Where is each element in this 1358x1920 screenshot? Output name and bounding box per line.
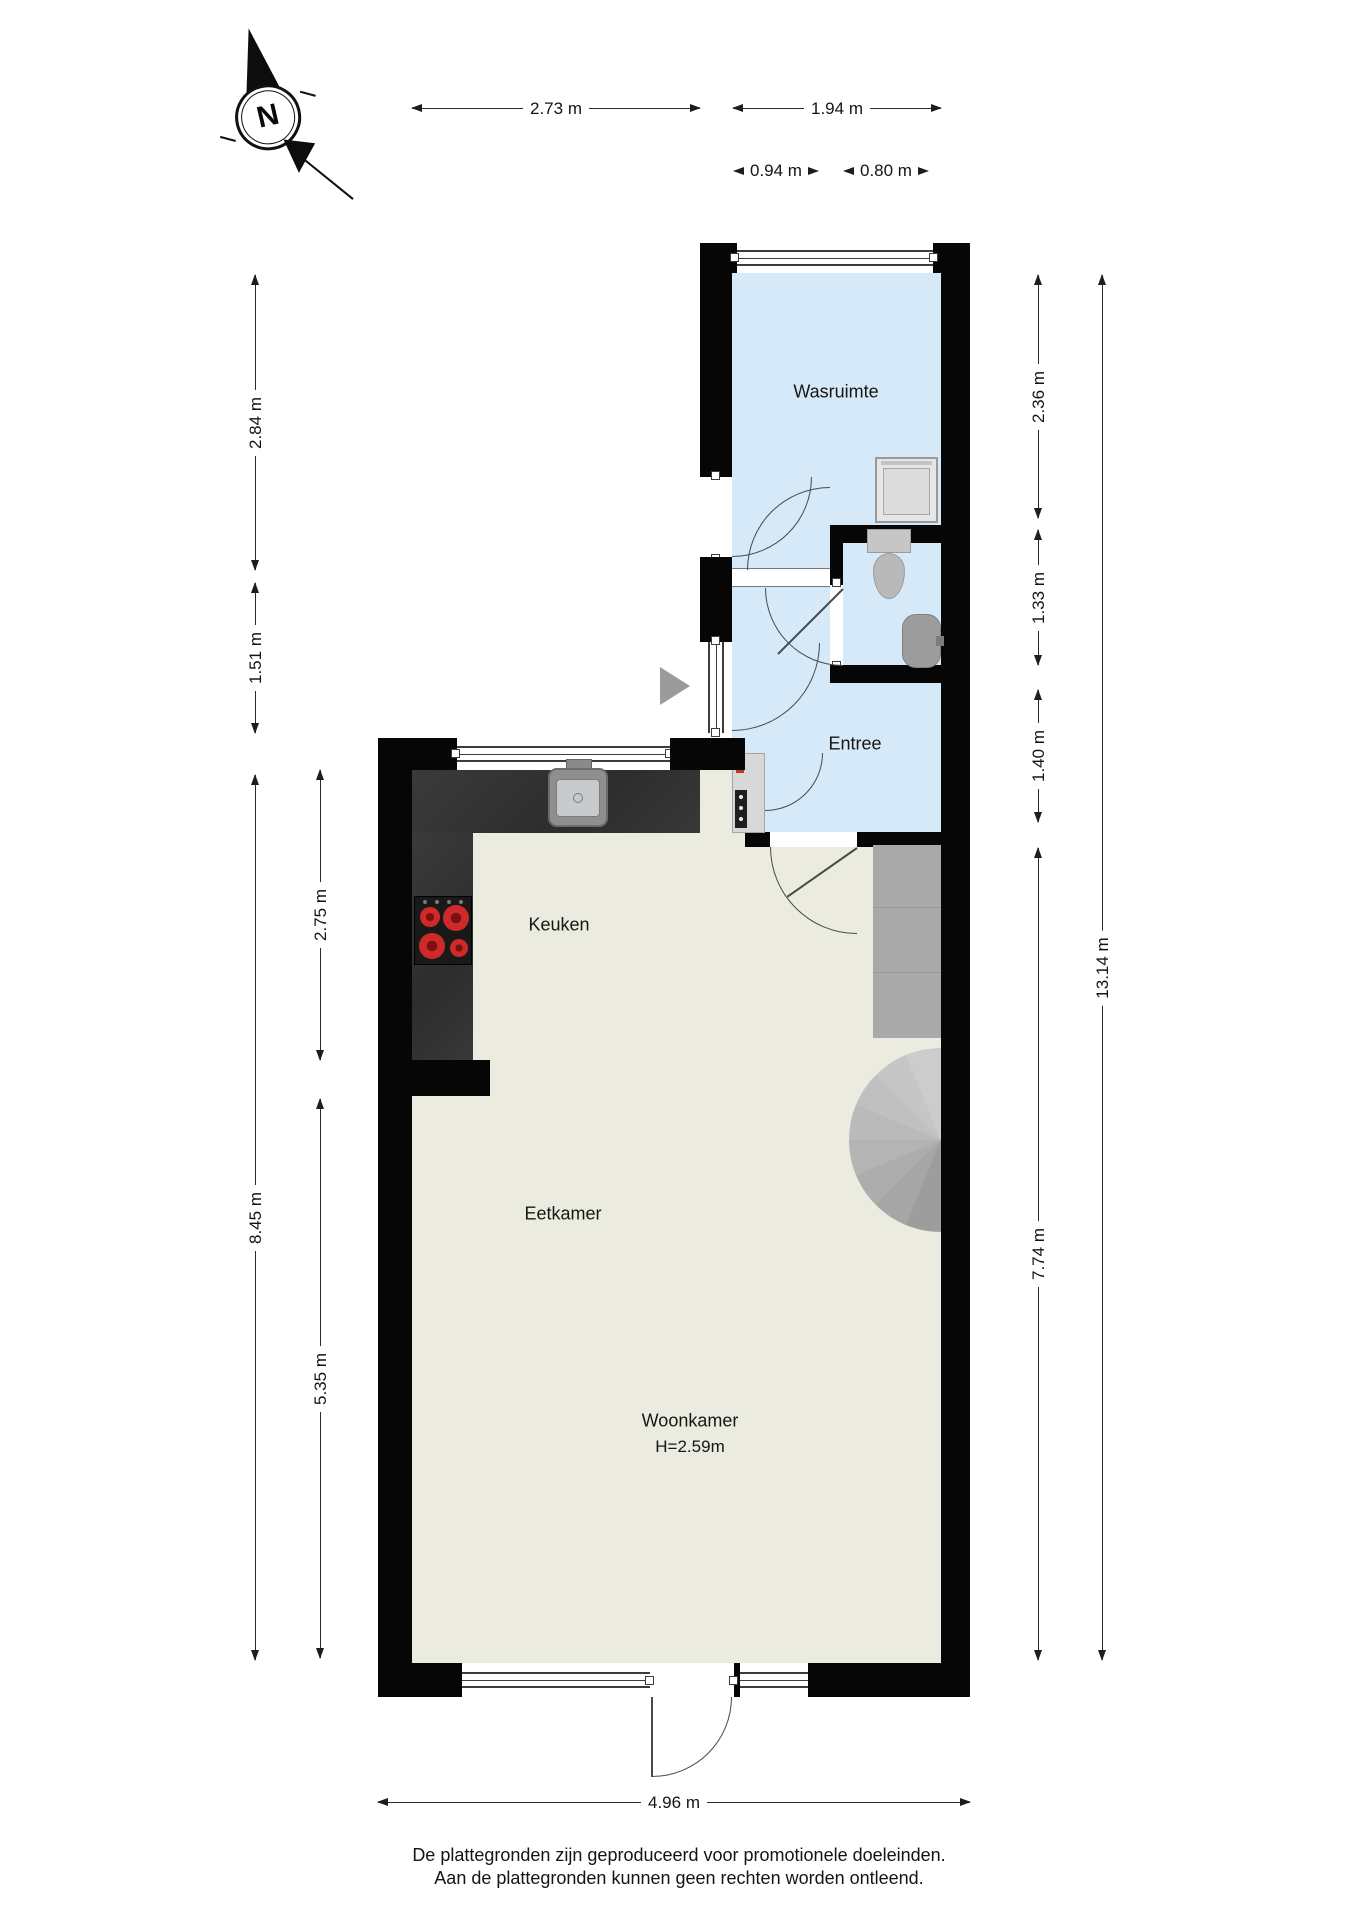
living-floor [412,832,941,1663]
arrow-down-icon [1034,812,1042,823]
disclaimer: De plattegronden zijn geproduceerd voor … [0,1844,1358,1890]
arrow-left-icon [733,167,744,175]
wc-sink [902,614,941,668]
arrow-up-icon [1034,689,1042,700]
arrow-right-icon [918,167,929,175]
stove-burner [419,933,445,959]
stove [414,896,472,965]
door-wasruimte-entree [732,568,830,587]
wall-bottom-left [378,1663,462,1697]
floorplan-canvas: N [0,0,1358,1920]
dimension-left-2-84: 2.84 m [255,275,256,570]
toilet-tank [867,529,911,553]
dimension-right-7-74: 7.74 m [1038,848,1039,1660]
stove-knob [447,900,451,904]
kitchen-sink-basin [556,779,600,817]
stair-cupboard [873,845,941,1038]
stove-knob [423,900,427,904]
arrow-right-icon [690,104,701,112]
room-label-entree: Entree [828,734,881,755]
arrow-down-icon [1034,655,1042,666]
arrow-down-icon [1034,508,1042,519]
arrow-down-icon [251,560,259,571]
door-jamb [711,471,720,480]
dimension-top-2-73: 2.73 m [412,108,700,109]
arrow-up-icon [1034,274,1042,285]
arrow-up-icon [316,769,324,780]
dimension-right-13-14: 13.14 m [1102,275,1103,1660]
window-jamb [451,749,460,758]
window-woonkamer-left [462,1672,650,1688]
arrow-left-icon [843,167,854,175]
arrow-up-icon [1098,274,1106,285]
door-jamb [711,728,720,737]
arrow-up-icon [1034,847,1042,858]
washing-machine-door [883,468,930,515]
wall-left-upper-a [700,273,732,477]
arrow-down-icon [1034,1650,1042,1661]
stove-burner [450,939,468,957]
window-jamb [730,253,739,262]
arrow-up-icon [251,274,259,285]
arrow-up-icon [251,774,259,785]
window-wasruimte-top [737,250,933,266]
wall-counter-stub [412,1060,490,1096]
arrow-down-icon [251,723,259,734]
arrow-down-icon [316,1648,324,1659]
arrow-up-icon [251,582,259,593]
meter-panel [735,790,747,828]
entrance-arrow-icon [660,667,690,705]
washing-machine-controls [881,461,932,465]
washing-machine [875,457,938,523]
front-door-glazing [708,642,724,733]
door-jamb [711,636,720,645]
wall-left-lower [378,738,412,1697]
arrow-left-icon [377,1798,388,1806]
back-door-swing-arc [652,1697,732,1777]
cupboard-seam [873,907,941,908]
wall-bottom-right [808,1663,970,1697]
compass-tick-left [220,136,236,142]
stove-knob [435,900,439,904]
stove-burner [443,905,469,931]
disclaimer-line-1: De plattegronden zijn geproduceerd voor … [0,1844,1358,1867]
window-kitchen [457,746,670,762]
door-jamb [832,578,841,587]
door-wasruimte-left [700,477,732,557]
disclaimer-line-2: Aan de plattegronden kunnen geen rechten… [0,1867,1358,1890]
dimension-left-8-45: 8.45 m [255,775,256,1660]
compass-rose-icon: N [185,14,354,228]
stove-knob [459,900,463,904]
door-jamb [729,1676,738,1685]
dimension-top-1-94: 1.94 m [733,108,941,109]
wall-left-upper-b [700,557,732,642]
dimension-right-2-36: 2.36 m [1038,275,1039,518]
room-label-wasruimte: Wasruimte [793,382,878,403]
compass-tick-right [300,91,316,97]
arrow-left-icon [411,104,422,112]
cupboard-seam [873,972,941,973]
arrow-left-icon [732,104,743,112]
arrow-right-icon [960,1798,971,1806]
stove-burner [420,907,440,927]
dimension-top-0-80: 0.80 m [843,161,929,181]
arrow-right-icon [808,167,819,175]
arrow-down-icon [1098,1650,1106,1661]
dimension-right-1-40: 1.40 m [1038,690,1039,822]
arrow-up-icon [1034,529,1042,540]
window-woonkamer-right [740,1672,808,1688]
dimension-left-1-51: 1.51 m [255,583,256,733]
window-jamb [929,253,938,262]
wall-right [941,243,970,1697]
kitchen-sink-drain [573,793,583,803]
compass-tail-line [296,153,353,200]
door-entree-eetkamer [770,832,857,847]
arrow-down-icon [316,1050,324,1061]
door-jamb [645,1676,654,1685]
kitchen-sink [548,768,608,827]
arrow-down-icon [251,1650,259,1661]
dimension-bottom-4-96: 4.96 m [378,1802,970,1803]
room-label-woonkamer-height: H=2.59m [655,1437,724,1457]
dimension-left-5-35: 5.35 m [320,1099,321,1658]
room-label-woonkamer: Woonkamer [642,1411,739,1432]
wall-kitchen-top-right [670,738,745,770]
room-label-keuken: Keuken [528,915,589,936]
wc-sink-tap [936,636,944,646]
dimension-top-0-94: 0.94 m [733,161,819,181]
arrow-up-icon [316,1098,324,1109]
arrow-right-icon [931,104,942,112]
dimension-left-2-75: 2.75 m [320,770,321,1060]
room-label-eetkamer: Eetkamer [524,1204,601,1225]
dimension-right-1-33: 1.33 m [1038,530,1039,665]
